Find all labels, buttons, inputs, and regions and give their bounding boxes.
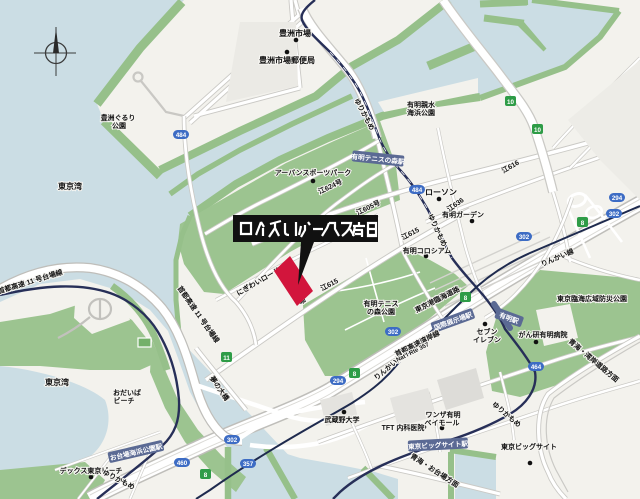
svg-text:464: 464: [531, 364, 542, 371]
svg-text:294: 294: [612, 195, 623, 202]
svg-text:ワンザ有明: ワンザ有明: [426, 410, 461, 419]
svg-text:8: 8: [581, 220, 585, 227]
svg-text:8: 8: [353, 371, 357, 378]
svg-text:豊洲市場郵便局: 豊洲市場郵便局: [259, 55, 315, 65]
svg-text:有明テニス: 有明テニス: [364, 299, 399, 308]
svg-text:484: 484: [176, 132, 187, 139]
svg-text:ベイモール: ベイモール: [425, 419, 460, 427]
svg-text:豊洲ぐるり: 豊洲ぐるり: [101, 113, 136, 122]
svg-text:東京ビッグサイト: 東京ビッグサイト: [501, 442, 557, 451]
svg-text:有明親水: 有明親水: [407, 100, 436, 109]
svg-text:有明コロシアム: 有明コロシアム: [403, 246, 452, 255]
svg-text:357: 357: [243, 461, 254, 468]
svg-text:8: 8: [464, 295, 468, 302]
svg-text:海浜公園: 海浜公園: [407, 108, 435, 117]
svg-text:302: 302: [388, 329, 399, 336]
svg-text:東京湾: 東京湾: [45, 377, 69, 387]
svg-text:8: 8: [204, 472, 208, 479]
svg-text:460: 460: [177, 460, 188, 467]
svg-text:TFT 内科医院: TFT 内科医院: [382, 423, 425, 432]
svg-text:294: 294: [333, 378, 344, 385]
svg-text:484: 484: [412, 187, 423, 194]
svg-text:東京湾: 東京湾: [58, 181, 82, 191]
svg-text:10: 10: [507, 99, 514, 106]
svg-text:セブン: セブン: [477, 327, 498, 336]
svg-text:の森公園: の森公園: [367, 307, 395, 316]
svg-text:11: 11: [223, 355, 230, 362]
svg-text:302: 302: [609, 211, 620, 218]
svg-text:302: 302: [519, 234, 530, 241]
svg-text:武蔵野大学: 武蔵野大学: [325, 415, 360, 424]
svg-text:ビーチ: ビーチ: [114, 396, 135, 405]
svg-text:東京臨海広域防災公園: 東京臨海広域防災公園: [557, 294, 627, 303]
svg-text:公園: 公園: [112, 121, 126, 130]
svg-text:ローソン: ローソン: [425, 188, 457, 197]
svg-text:おだいば: おだいば: [113, 388, 141, 397]
svg-text:アーバンスポーツパーク: アーバンスポーツパーク: [275, 168, 352, 177]
svg-text:10: 10: [534, 127, 541, 134]
svg-text:イレブン: イレブン: [473, 335, 501, 344]
svg-text:がん研有明病院: がん研有明病院: [519, 330, 568, 339]
svg-text:豊洲市場: 豊洲市場: [279, 28, 311, 38]
svg-text:302: 302: [227, 437, 238, 444]
